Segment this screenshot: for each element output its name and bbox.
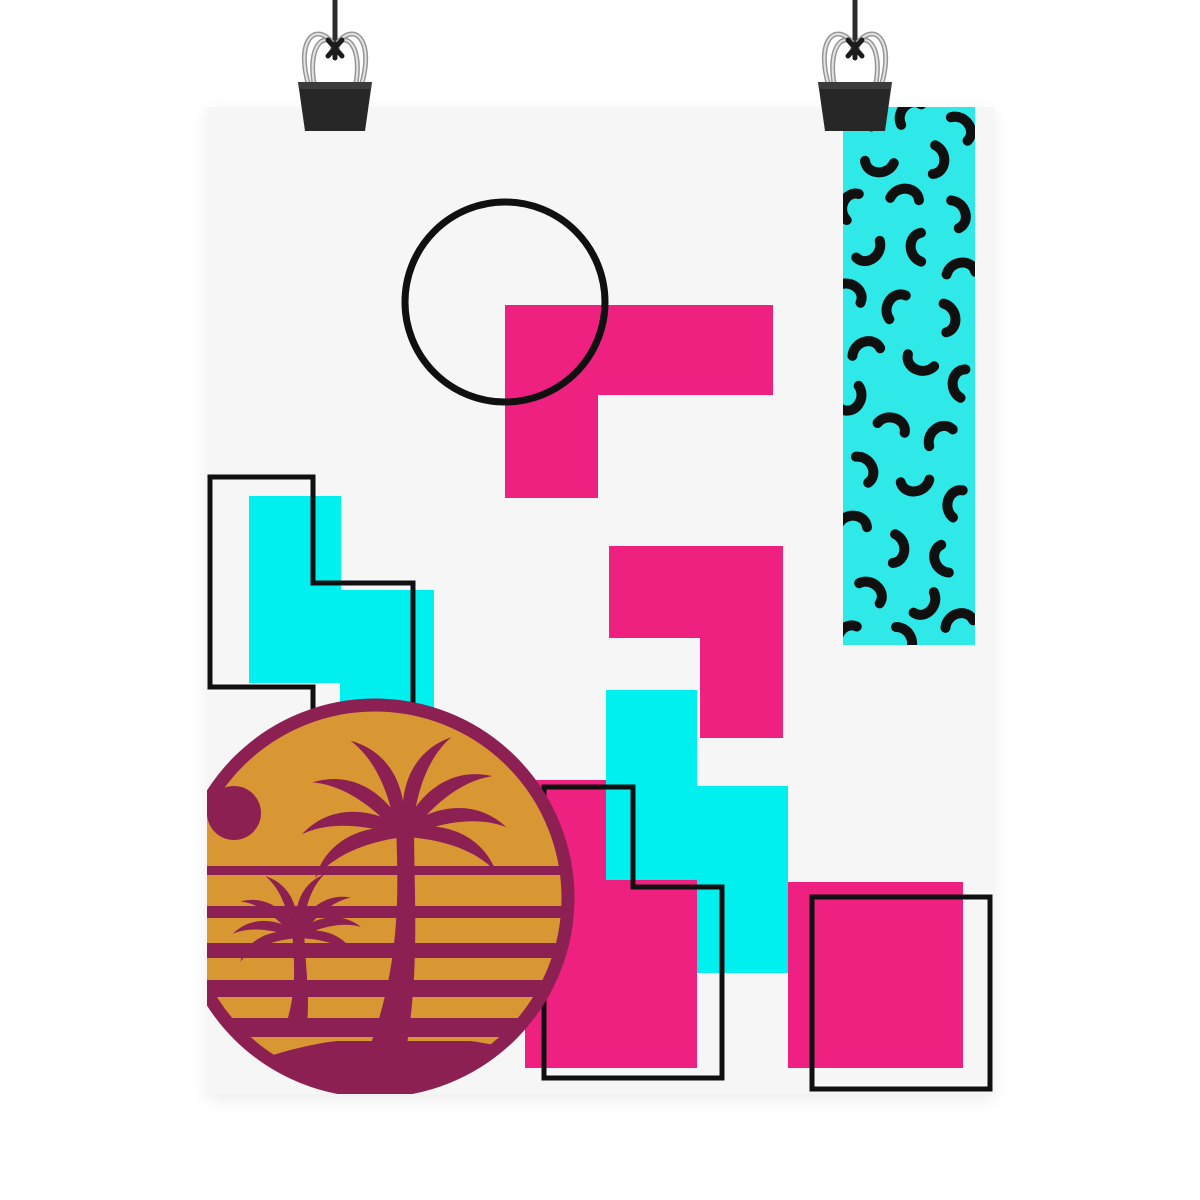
binder-clip-right xyxy=(818,0,892,131)
mockup-scene xyxy=(0,0,1200,1200)
memphis-squiggle-panel xyxy=(831,99,977,654)
sunset-stripe xyxy=(175,906,580,918)
poster-artwork xyxy=(170,99,994,1100)
sunset-stripe xyxy=(175,943,580,958)
sunset-stripe xyxy=(175,866,580,875)
sunset-stripe xyxy=(175,980,580,997)
artwork-svg xyxy=(0,0,1200,1200)
binder-clip-left xyxy=(298,0,372,131)
